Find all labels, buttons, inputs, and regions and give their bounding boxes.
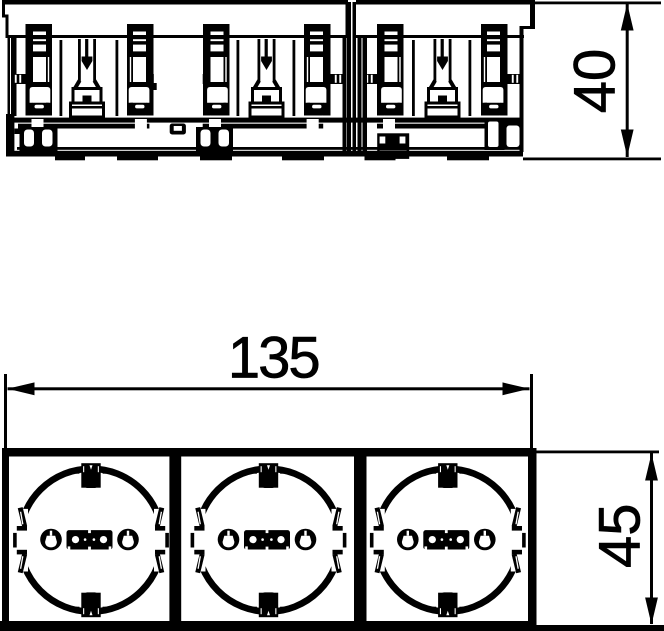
svg-text:135: 135 bbox=[228, 326, 319, 391]
svg-text:40: 40 bbox=[563, 49, 628, 114]
svg-text:45: 45 bbox=[588, 503, 653, 568]
